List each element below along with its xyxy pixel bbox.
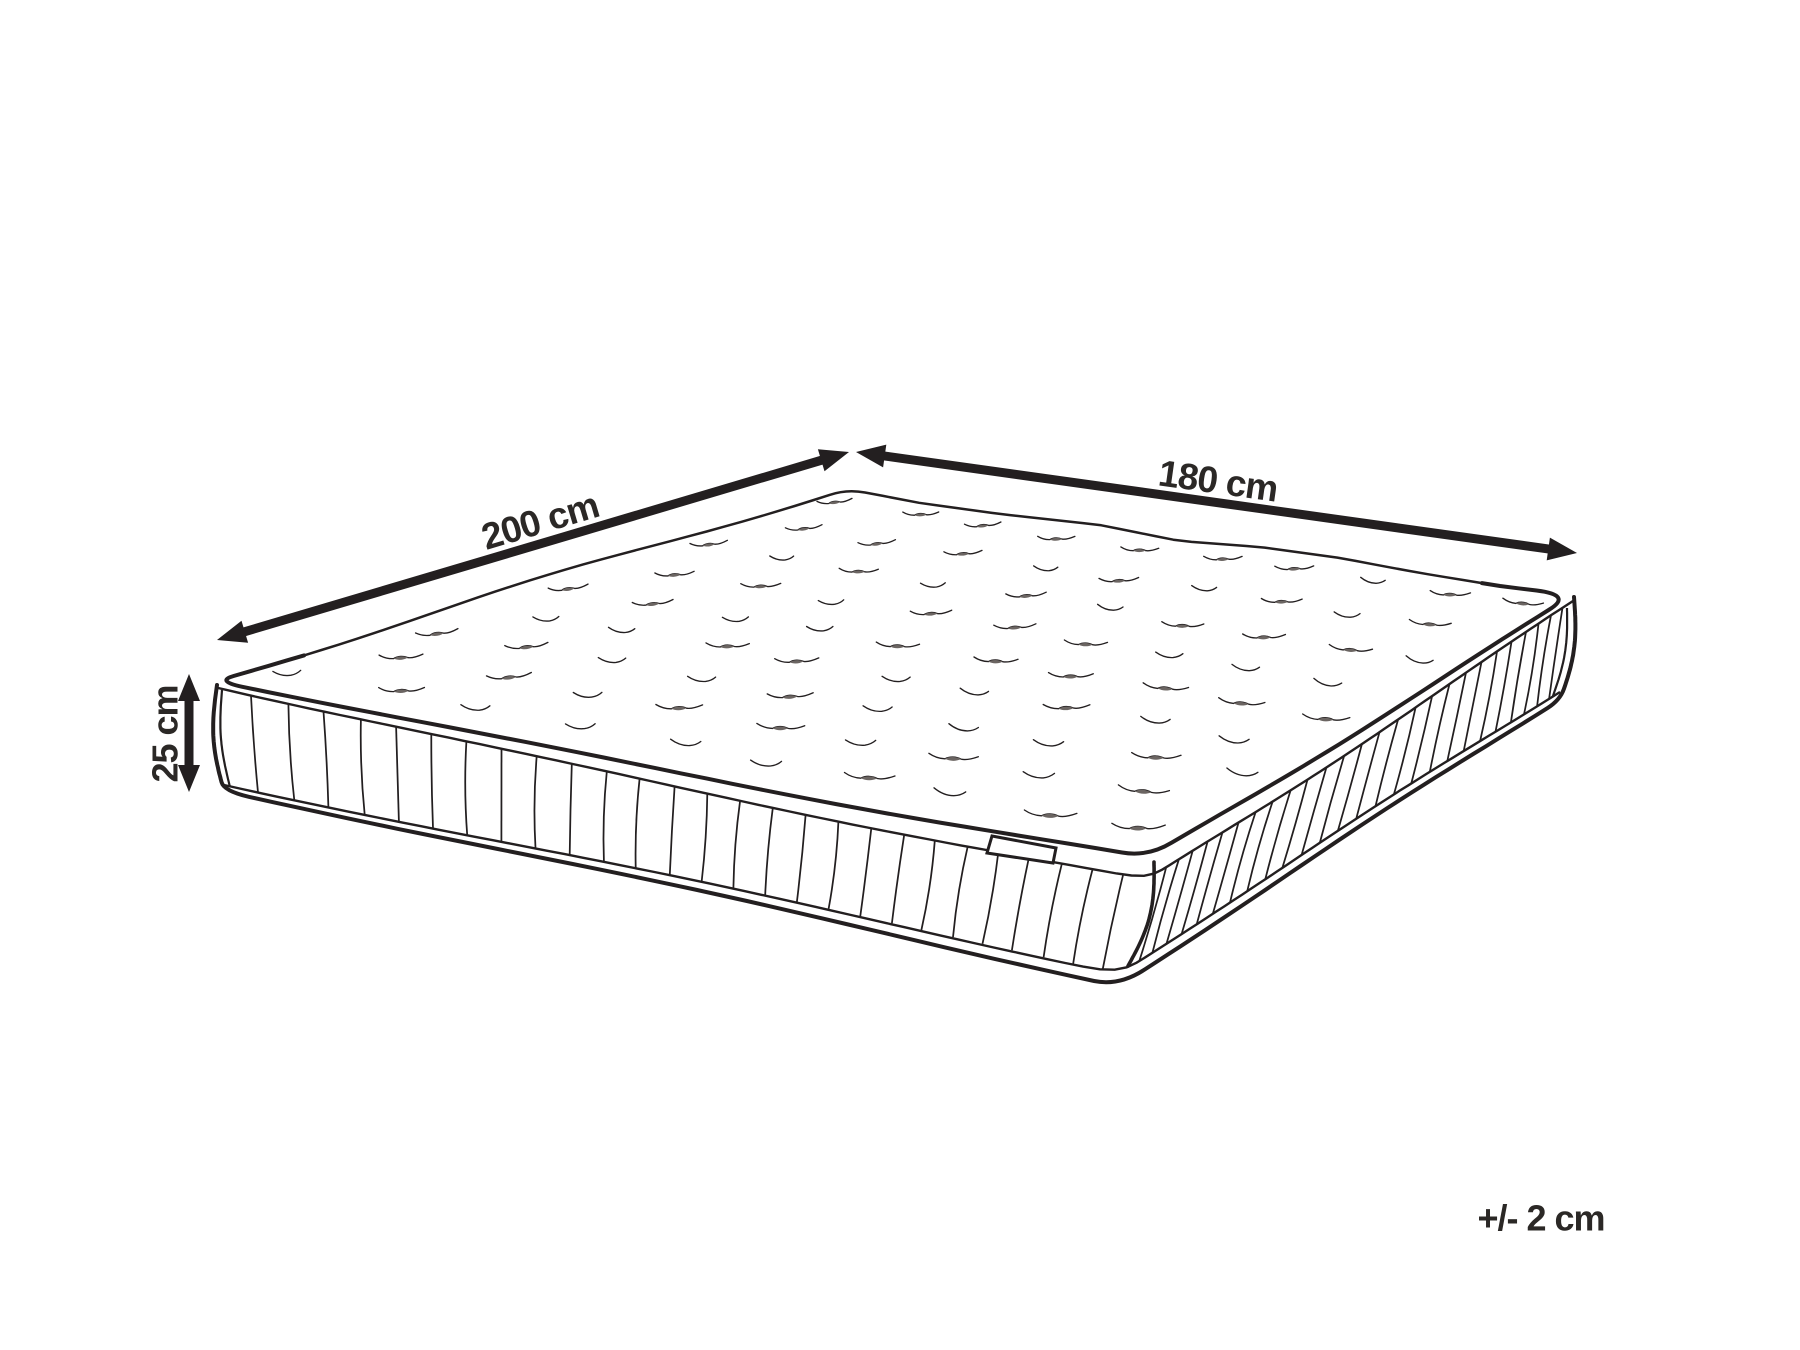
svg-text:25 cm: 25 cm [145,685,186,782]
svg-text:+/- 2 cm: +/- 2 cm [1477,1198,1604,1239]
